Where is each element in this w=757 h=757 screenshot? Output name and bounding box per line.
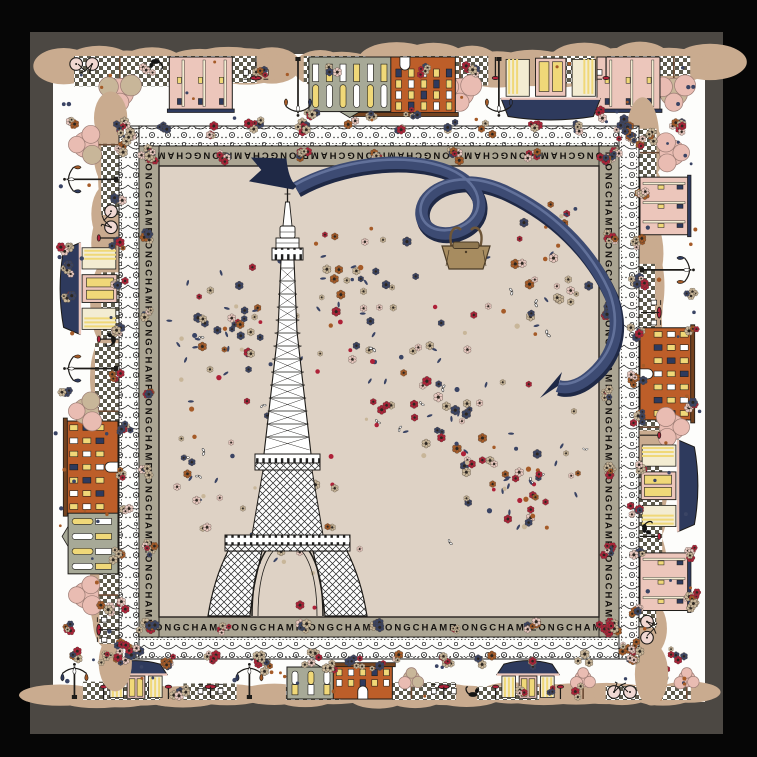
brand-text: LONGCHAMP [143, 156, 154, 236]
brand-text: LONGCHAMP [143, 547, 154, 627]
brand-text: LONGCHAMP [143, 312, 154, 392]
scarf-illustration: LONGCHAMPLONGCHAMPLONGCHAMPLONGCHAMPLONG… [0, 0, 757, 757]
brand-text: LONGCHAMP [147, 150, 227, 161]
brand-text: LONGCHAMP [143, 391, 154, 471]
brand-text: LONGCHAMP [603, 547, 614, 627]
brand-text: LONGCHAMP [143, 234, 154, 314]
brand-text: LONGCHAMP [143, 469, 154, 549]
brand-text: LONGCHAMP [603, 156, 614, 236]
brand-text: LONGCHAMP [603, 391, 614, 471]
brand-text: LONGCHAMP [377, 622, 457, 633]
brand-text: LONGCHAMP [301, 622, 381, 633]
brand-text: LONGCHAMP [454, 622, 534, 633]
brand-text: LONGCHAMP [454, 150, 534, 161]
brand-text: LONGCHAMP [603, 469, 614, 549]
brand-text: LONGCHAMP [224, 622, 304, 633]
scarf-product-photo: LONGCHAMPLONGCHAMPLONGCHAMPLONGCHAMPLONG… [0, 0, 757, 757]
